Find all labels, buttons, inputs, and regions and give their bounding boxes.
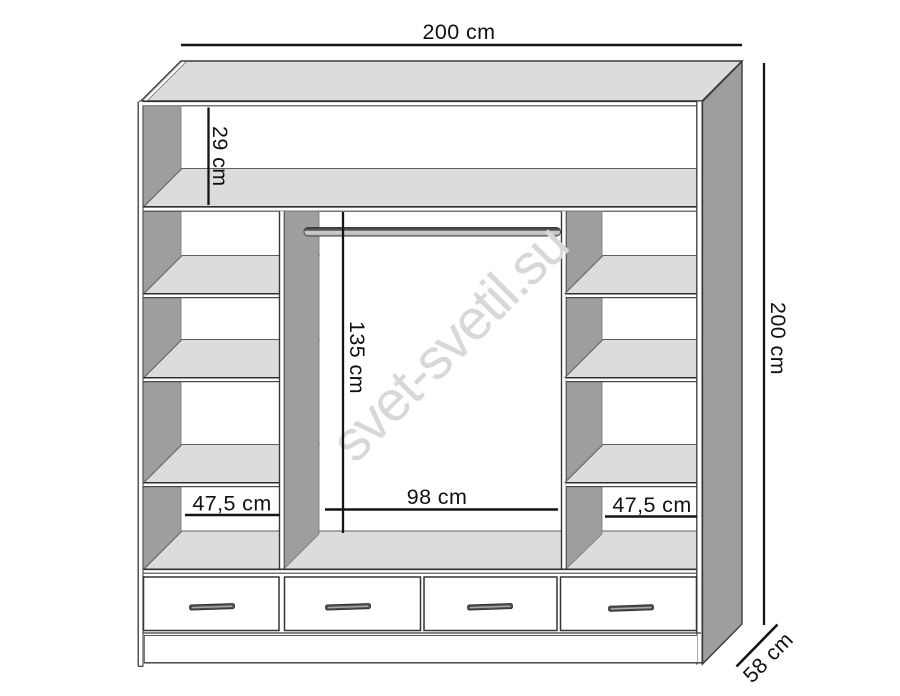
svg-text:29 cm: 29 cm: [208, 126, 232, 187]
svg-text:47,5 cm: 47,5 cm: [612, 493, 691, 517]
svg-text:47,5 cm: 47,5 cm: [192, 492, 271, 516]
svg-text:200 cm: 200 cm: [766, 302, 790, 375]
svg-text:98 cm: 98 cm: [407, 485, 468, 509]
svg-text:200 cm: 200 cm: [423, 20, 496, 44]
svg-text:135 cm: 135 cm: [345, 321, 369, 394]
